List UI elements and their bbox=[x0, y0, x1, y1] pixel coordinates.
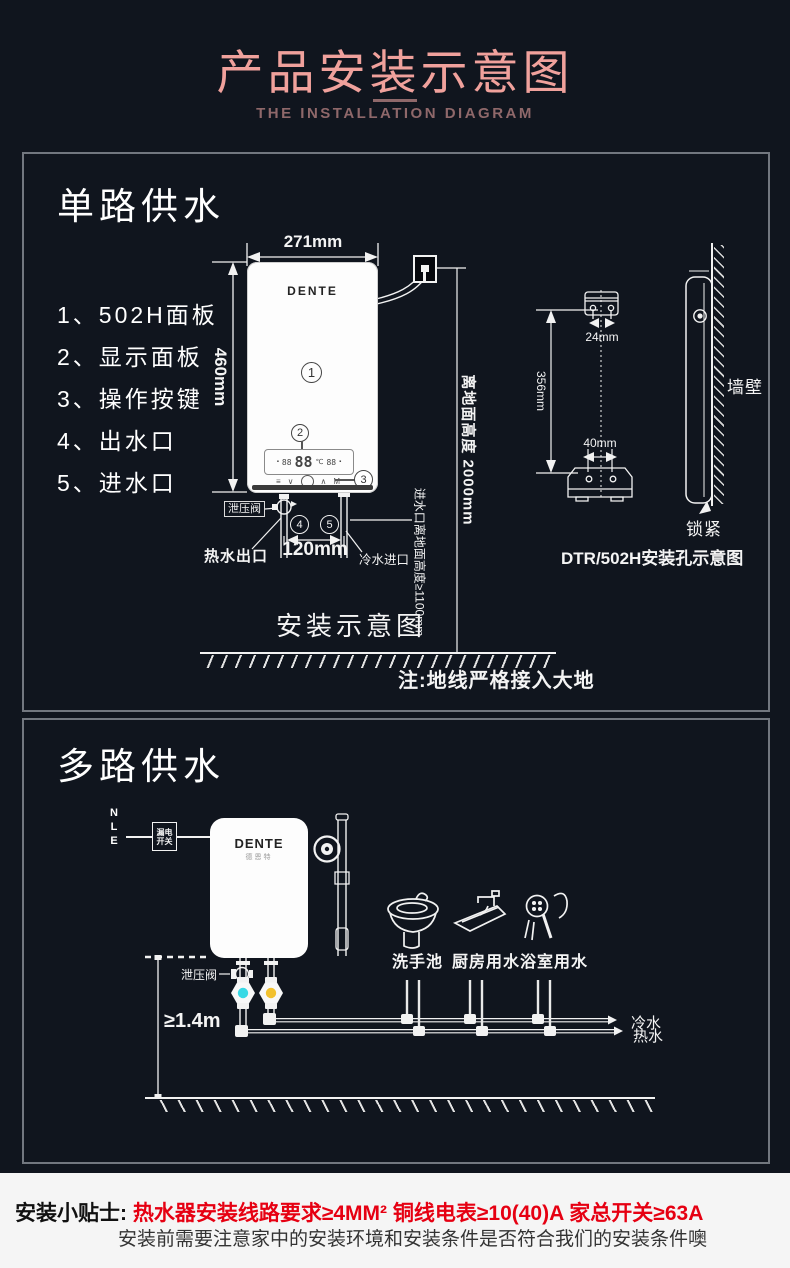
wire-l: L bbox=[106, 820, 122, 834]
fixture-label-basin: 洗手池 bbox=[392, 948, 443, 972]
wire-labels: N L E bbox=[106, 806, 122, 848]
hot-outlet-label: 热水出口 bbox=[204, 545, 268, 566]
tip-label: 安装小贴士: bbox=[15, 1202, 127, 1225]
tip-highlight: 热水器安装线路要求≥4MM² 铜线电表≥10(40)A 家总开关≥63A bbox=[133, 1202, 704, 1225]
hot-water-label: 热水 bbox=[633, 1025, 663, 1046]
relief-valve-1 bbox=[272, 494, 297, 514]
dim-356-label: 356mm bbox=[534, 371, 548, 411]
footer-tips: 安装小贴士: 热水器安装线路要求≥4MM² 铜线电表≥10(40)A 家总开关≥… bbox=[0, 1173, 790, 1268]
dim-24 bbox=[589, 318, 615, 328]
wall-hatch bbox=[714, 245, 724, 504]
display-panel: ▪ 88 88 ℃ 88 ▪ bbox=[264, 449, 354, 475]
fixture-label-kitchen: 厨房用水 bbox=[452, 948, 520, 972]
mount-caption: DTR/502H安装孔示意图 bbox=[561, 544, 743, 569]
dim-24-label: 24mm bbox=[585, 330, 618, 344]
section2-title: 多路供水 bbox=[57, 736, 225, 790]
brand-logo-cn: 德恩特 bbox=[210, 852, 308, 862]
water-heater-front: DENTE 1 2 ▪ 88 88 ℃ 88 ▪ ≡ ∨ ∧ M 3 bbox=[247, 262, 378, 493]
dim-40-label: 40mm bbox=[583, 436, 616, 450]
lock-label: 锁紧 bbox=[686, 515, 722, 540]
socket-height-label: 离地面高度 2000mm bbox=[459, 374, 480, 525]
mark-5: 5 bbox=[320, 515, 339, 534]
display-left-icon: ▪ bbox=[277, 459, 279, 465]
power-socket bbox=[413, 255, 437, 283]
leader-mark-3 bbox=[335, 479, 355, 481]
breaker-label-1: 漏电 bbox=[157, 828, 173, 837]
heater-bottom-strip bbox=[252, 485, 373, 490]
display-unit: ℃ bbox=[316, 458, 324, 466]
wire-n: N bbox=[106, 806, 122, 820]
dim-width-label: 271mm bbox=[284, 232, 343, 252]
ground-note: 注:地线严格接入大地 bbox=[398, 664, 595, 693]
diagram-caption: 安装示意图 bbox=[276, 606, 426, 643]
relief-valve-label-1: 泄压阀 bbox=[224, 501, 265, 517]
min-height-label: ≥1.4m bbox=[164, 1010, 221, 1033]
breaker-label-2: 开关 bbox=[157, 837, 173, 846]
leakage-breaker: 漏电 开关 bbox=[152, 822, 177, 851]
mark-2: 2 bbox=[291, 424, 309, 442]
display-right-icon: ▪ bbox=[339, 459, 341, 465]
dim-height-label: 460mm bbox=[210, 348, 230, 407]
mark-1: 1 bbox=[301, 362, 322, 383]
fixture-label-bath: 浴室用水 bbox=[520, 948, 588, 972]
relief-valve-label-2: 泄压阀 bbox=[181, 966, 217, 983]
tip-line-1: 安装小贴士: 热水器安装线路要求≥4MM² 铜线电表≥10(40)A 家总开关≥… bbox=[15, 1197, 703, 1227]
cold-inlet-label: 冷水进口 bbox=[359, 549, 409, 568]
mark-4: 4 bbox=[290, 515, 309, 534]
brand-logo: DENTE bbox=[247, 284, 378, 298]
wall-label: 墙壁 bbox=[727, 373, 763, 398]
water-heater-multi: DENTE 德恩特 bbox=[210, 818, 308, 958]
product-installation-graphic: 产品安装示意图 THE INSTALLATION DIAGRAM 单路供水 1、… bbox=[0, 0, 790, 1268]
plug-icon bbox=[421, 265, 429, 272]
wall-side-view bbox=[686, 243, 712, 514]
tip-line-2: 安装前需要注意家中的安装环境和安装条件是否符合我们的安装条件噢 bbox=[118, 1224, 707, 1251]
display-aux-left: 88 bbox=[282, 458, 292, 467]
display-main-value: 88 bbox=[295, 453, 313, 471]
dim-pipes-label: 120mm bbox=[282, 539, 348, 561]
wire-e: E bbox=[106, 834, 122, 848]
cord-stub bbox=[423, 272, 426, 281]
display-aux-right: 88 bbox=[326, 458, 336, 467]
brand-logo: DENTE bbox=[210, 836, 308, 851]
